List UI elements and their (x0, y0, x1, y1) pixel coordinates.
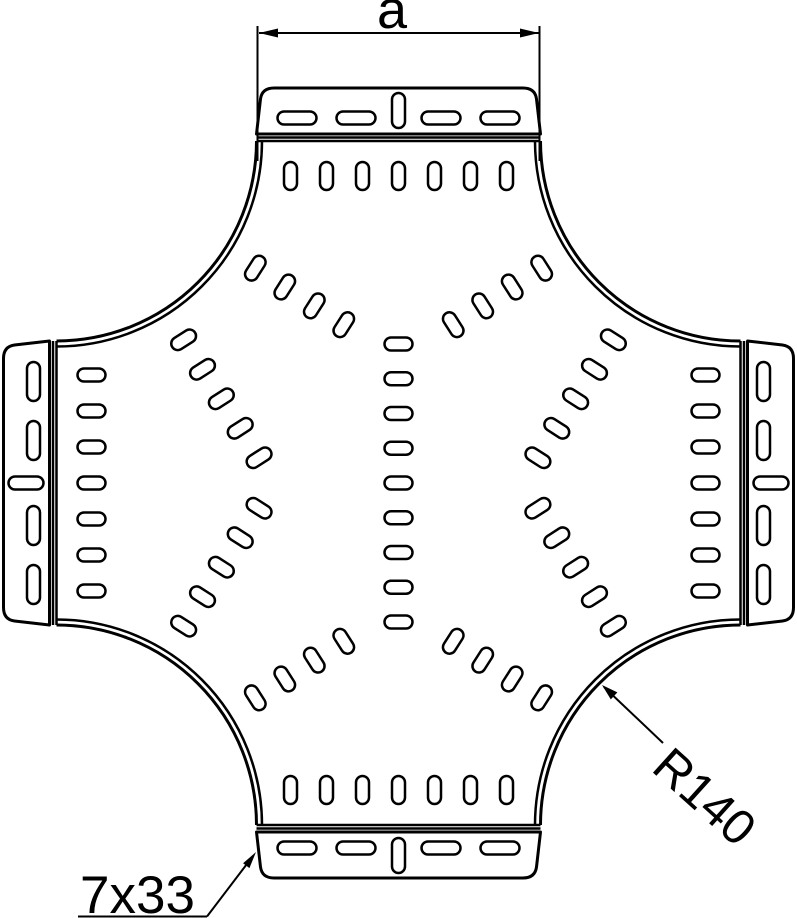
perforation-slot (692, 513, 720, 526)
perforation-slot (206, 386, 236, 411)
slot-size-label: 7x33 (80, 866, 195, 918)
perforation-slot (78, 477, 106, 490)
perforation-slot (169, 613, 199, 638)
perforation-slot (499, 272, 524, 302)
perforation-slot (385, 442, 413, 455)
perforation-slot (78, 585, 106, 598)
perforation-slot (529, 253, 554, 283)
perforation-slot (464, 162, 477, 190)
perforation-slot (440, 626, 465, 656)
perforation-slot (692, 441, 720, 454)
perforation-slot (278, 112, 317, 125)
perforation-slot (757, 506, 770, 545)
perforation-slot (27, 362, 40, 401)
radius-label: R140 (643, 738, 766, 857)
perforation-slot (692, 549, 720, 562)
cable-tray-cross-piece-drawing: a R140 7x33 (0, 0, 797, 918)
perforation-slot (481, 842, 520, 855)
perforation-slot (385, 372, 413, 385)
perforation-slot (302, 645, 327, 675)
perforation-slot (598, 327, 628, 352)
perforation-slot (542, 525, 572, 550)
perforation-slot (392, 162, 405, 190)
perforation-slot (385, 338, 413, 351)
perforation-slot (27, 421, 40, 460)
perforation-slot (244, 495, 274, 520)
perforation-slot (580, 357, 610, 382)
perforation-slot (9, 477, 44, 490)
perforation-slot (385, 546, 413, 559)
perforation-slot (385, 407, 413, 420)
dimension-a-label: a (377, 0, 408, 40)
perforation-slot (470, 291, 495, 321)
fillet-arc-bottom-left-edge (57, 620, 263, 826)
fillet-arc-top-right-edge (535, 141, 741, 347)
perforation-slot (757, 421, 770, 460)
perforation-slot (78, 369, 106, 382)
perforation-slot (188, 584, 218, 609)
perforation-slot (464, 776, 477, 804)
seam-right (741, 341, 748, 625)
perforation-slot (27, 565, 40, 604)
perforation-slot (78, 405, 106, 418)
perforation-slot (392, 838, 405, 873)
perforation-slot (320, 162, 333, 190)
perforation-slot (78, 513, 106, 526)
perforation-slot (302, 291, 327, 321)
perforation-slot (337, 112, 376, 125)
perforation-slot (225, 416, 255, 441)
perforation-slot (428, 162, 441, 190)
perforation-slot (331, 310, 356, 340)
perforation-slot (385, 616, 413, 629)
fillet-arc-top-right (541, 141, 741, 341)
perforation-slot (320, 776, 333, 804)
perforation-slot (356, 776, 369, 804)
radius-callout: R140 (602, 685, 766, 857)
perforation-slot (356, 162, 369, 190)
perforation-slot (392, 93, 405, 128)
slot-size-callout: 7x33 (78, 852, 256, 918)
perforation-slot (272, 272, 297, 302)
seam-top (257, 134, 541, 141)
perforation-slot (500, 776, 513, 804)
perforation-slot (470, 645, 495, 675)
perforation-slot (284, 162, 297, 190)
perforation-slot (561, 554, 591, 579)
perforation-slot (422, 842, 461, 855)
perforation-slot (500, 162, 513, 190)
perforation-slot (27, 506, 40, 545)
seam-left (50, 341, 57, 625)
perforation-slot (692, 405, 720, 418)
perforation-slot (757, 362, 770, 401)
perforation-slot (244, 445, 274, 470)
fillet-arc-bottom-left (57, 625, 257, 825)
perforation-slot (757, 565, 770, 604)
perforation-slot (440, 310, 465, 340)
perforation-slot (561, 386, 591, 411)
perforation-slot (422, 112, 461, 125)
perforation-slot (692, 585, 720, 598)
perforation-slot (529, 683, 554, 713)
perforation-slot (385, 581, 413, 594)
perforation-slot (278, 842, 317, 855)
perforation-slot (542, 416, 572, 441)
perforation-slot (331, 626, 356, 656)
perforation-slot (188, 357, 218, 382)
perforation-slot (225, 525, 255, 550)
perforation-slot (385, 477, 413, 490)
perforation-slot (169, 327, 199, 352)
perforation-slot (284, 776, 297, 804)
dimension-arrowhead-left-icon (259, 29, 278, 38)
perforation-slot (523, 495, 553, 520)
perforation-slot (78, 441, 106, 454)
dimension-arrowhead-right-icon (520, 29, 539, 38)
perforation-slot (428, 776, 441, 804)
perforation-slot (78, 549, 106, 562)
perforation-slot (580, 584, 610, 609)
perforation-slot (272, 664, 297, 694)
perforation-slot (243, 253, 268, 283)
perforation-slot (523, 445, 553, 470)
perforation-slot (337, 842, 376, 855)
perforation-slot (481, 112, 520, 125)
technical-drawing-page: a R140 7x33 (0, 0, 797, 918)
perforation-slot (754, 477, 789, 490)
seam-bottom (257, 825, 541, 832)
perforation-slot (243, 683, 268, 713)
perforation-slot (392, 776, 405, 804)
fillet-arc-top-left (57, 141, 257, 341)
perforation-slot (385, 511, 413, 524)
perforation-slot (598, 613, 628, 638)
fillet-arc-top-left-edge (57, 141, 263, 347)
perforation-slot (692, 369, 720, 382)
perforation-slot (499, 664, 524, 694)
perforation-slot (692, 477, 720, 490)
perforation-slot (206, 554, 236, 579)
